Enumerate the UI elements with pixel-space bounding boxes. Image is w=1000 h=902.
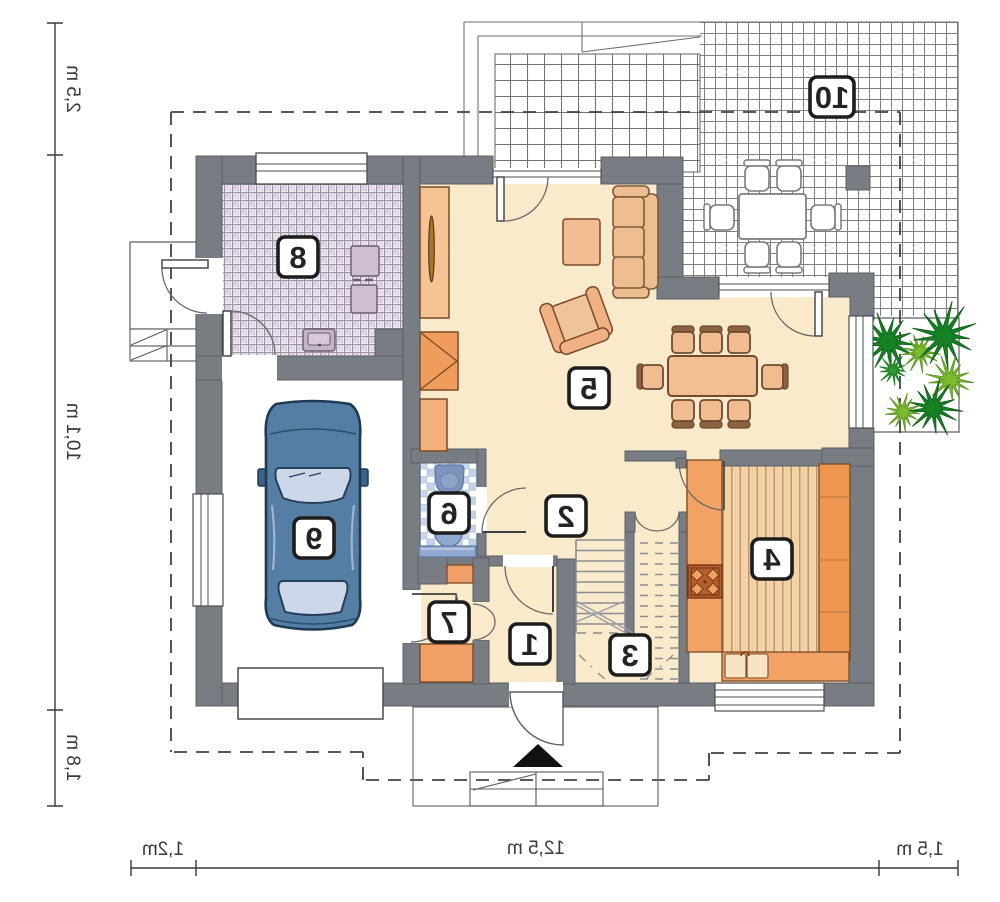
svg-text:2,5 m: 2,5 m xyxy=(62,65,83,113)
svg-text:7: 7 xyxy=(440,605,457,640)
svg-text:3: 3 xyxy=(621,638,638,673)
svg-text:9: 9 xyxy=(305,521,322,556)
svg-text:4: 4 xyxy=(763,542,781,577)
svg-text:5: 5 xyxy=(580,371,597,406)
svg-text:10,1 m: 10,1 m xyxy=(62,403,83,461)
svg-text:1: 1 xyxy=(521,627,538,662)
svg-text:12,5 m: 12,5 m xyxy=(507,838,565,859)
svg-text:1,5 m: 1,5 m xyxy=(896,839,944,860)
svg-text:8: 8 xyxy=(289,240,306,275)
svg-text:2: 2 xyxy=(557,499,574,534)
svg-text:10: 10 xyxy=(815,80,849,115)
svg-text:1,2m: 1,2m xyxy=(142,839,184,860)
svg-text:6: 6 xyxy=(440,496,457,531)
svg-text:1,8 m: 1,8 m xyxy=(62,734,83,782)
